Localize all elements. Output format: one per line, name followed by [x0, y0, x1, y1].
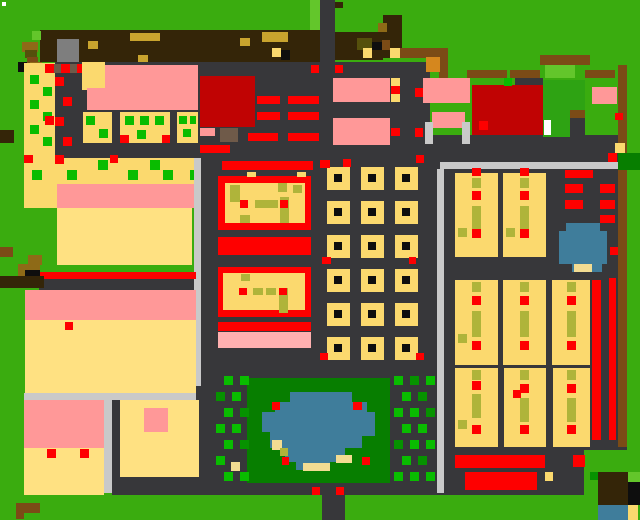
window: [615, 143, 625, 153]
marker: [343, 159, 351, 167]
storage-hatch: [334, 344, 342, 352]
storage-hatch: [402, 276, 410, 284]
park-tree: [240, 408, 249, 417]
detail: [567, 398, 576, 422]
crop-dot: [86, 116, 95, 125]
crop-dot: [183, 129, 191, 137]
red-bar: [600, 200, 615, 209]
pink-building: [333, 78, 390, 102]
shed: [598, 472, 628, 505]
pink-building: [333, 118, 390, 145]
red-bar: [600, 215, 615, 223]
crop-dot: [140, 116, 149, 125]
marker: [520, 296, 529, 305]
park-tree: [224, 472, 233, 481]
red-bar: [218, 237, 311, 255]
marker: [580, 457, 585, 466]
marker: [472, 168, 481, 176]
red-bar: [600, 184, 615, 193]
marker: [472, 341, 481, 350]
red-bar: [455, 455, 545, 468]
shrub: [335, 2, 343, 8]
crop-dot: [30, 100, 39, 109]
crop-dot: [43, 87, 52, 96]
storage-hatch: [334, 276, 342, 284]
crop-dot: [137, 130, 146, 139]
dark-red-building: [200, 76, 255, 127]
red-stripe: [609, 278, 616, 440]
marker: [47, 449, 56, 458]
red-bar: [218, 322, 311, 331]
marker: [280, 200, 288, 208]
water-tank: [566, 223, 600, 231]
grass-stripe: [310, 0, 320, 33]
crop-dot: [590, 472, 598, 480]
door: [281, 50, 290, 60]
hedge: [16, 512, 24, 519]
pond-sand: [336, 455, 352, 463]
grass-field: [626, 135, 640, 153]
marker: [567, 425, 576, 434]
window: [297, 172, 306, 177]
crop-dot: [504, 78, 512, 86]
pink-building: [144, 408, 168, 432]
pink-building: [24, 400, 104, 448]
crop-dot: [67, 170, 77, 180]
park-tree: [410, 472, 419, 481]
water-tank: [559, 231, 607, 264]
marker: [272, 402, 280, 410]
marker: [615, 113, 623, 120]
marker: [240, 200, 248, 208]
window: [391, 94, 400, 102]
crop-dot: [43, 137, 52, 146]
pink-building: [57, 184, 196, 208]
storage-hatch: [402, 344, 410, 352]
crop-dot: [155, 116, 164, 125]
detail: [458, 420, 467, 429]
marker: [320, 160, 330, 168]
storage-hatch: [368, 174, 376, 182]
pink-building: [87, 88, 105, 110]
red-bar: [200, 145, 230, 153]
red-bar: [565, 200, 583, 209]
marker: [63, 137, 72, 146]
roof-tile: [240, 38, 250, 46]
white-tile: [544, 120, 551, 135]
red-bar: [565, 184, 583, 193]
red-bar: [40, 272, 196, 279]
fence: [585, 70, 615, 78]
detail: [266, 288, 276, 295]
detail: [458, 334, 467, 343]
town-map-viewport[interactable]: [0, 0, 640, 520]
park-patch: [618, 153, 640, 170]
pond: [598, 505, 628, 520]
marker: [65, 322, 73, 330]
marker: [362, 457, 370, 465]
crop-dot: [163, 170, 173, 180]
park-tree: [240, 376, 249, 385]
detail: [240, 215, 250, 223]
red-bar: [257, 112, 280, 120]
park-tree: [418, 424, 427, 433]
detail: [472, 178, 481, 188]
window: [272, 48, 281, 57]
detail: [520, 178, 529, 188]
road-lane: [568, 118, 585, 135]
marker: [239, 288, 247, 295]
tree: [0, 247, 13, 257]
pond-sand: [574, 264, 592, 272]
pillar: [462, 122, 470, 144]
red-stripe: [592, 280, 601, 440]
sparkle: [2, 2, 6, 6]
marker: [391, 86, 400, 94]
marker: [55, 117, 64, 126]
roof-tile: [130, 33, 160, 41]
detail: [472, 370, 481, 380]
marker: [279, 288, 287, 295]
storage-hatch: [402, 208, 410, 216]
marker: [472, 381, 481, 390]
pillar: [425, 122, 433, 144]
detail: [241, 274, 250, 281]
marker: [520, 341, 529, 350]
fence: [467, 70, 507, 78]
sidewalk: [104, 400, 112, 493]
crop-dot: [99, 129, 108, 138]
crop-dot: [125, 116, 134, 125]
marker: [472, 191, 481, 200]
fence: [540, 55, 590, 65]
park-tree: [426, 472, 435, 481]
marker: [610, 247, 618, 255]
detail: [458, 228, 467, 237]
marker: [336, 487, 344, 495]
crop-field: [24, 448, 104, 495]
park-tree: [426, 440, 435, 449]
tree-trunk: [372, 42, 382, 50]
yellow-building: [82, 62, 105, 90]
road-north: [320, 0, 335, 62]
road-lane: [39, 279, 196, 290]
storage-hatch: [368, 310, 376, 318]
marker: [520, 425, 529, 434]
sidewalk: [440, 162, 640, 169]
marker: [513, 390, 521, 398]
marker: [63, 97, 72, 106]
window: [545, 472, 553, 481]
red-bar: [288, 96, 319, 104]
grass-field: [0, 495, 322, 520]
marker: [335, 65, 343, 73]
fence: [439, 48, 448, 78]
pond: [270, 432, 362, 448]
flower: [24, 155, 33, 163]
detail: [255, 200, 278, 208]
shrub: [0, 130, 14, 143]
pink-building: [592, 87, 617, 104]
marker: [472, 296, 481, 305]
park-tree: [402, 456, 411, 465]
grass-tuft: [32, 31, 41, 40]
park-tree: [410, 408, 419, 417]
storage-hatch: [368, 276, 376, 284]
park-tree: [394, 408, 403, 417]
crop-dot: [179, 116, 187, 124]
marker: [520, 384, 529, 393]
marker: [608, 153, 617, 162]
pink-building: [105, 65, 198, 110]
detail: [567, 311, 576, 337]
park-tree: [224, 408, 233, 417]
detail: [472, 311, 481, 337]
crop-dot: [128, 170, 138, 180]
storage-hatch: [334, 310, 342, 318]
marker: [311, 65, 319, 73]
sidewalk: [24, 393, 196, 400]
park-tree: [216, 456, 225, 465]
marker: [415, 128, 423, 137]
crop-dot: [150, 160, 160, 170]
park-tree: [394, 472, 403, 481]
building-court: [223, 273, 305, 310]
detail: [520, 398, 529, 422]
detail: [472, 394, 481, 418]
park-tree: [418, 456, 427, 465]
park-tree: [216, 392, 225, 401]
detail: [567, 282, 576, 292]
marker: [472, 425, 481, 434]
park-tree: [240, 440, 249, 449]
marker: [567, 384, 576, 393]
marker: [520, 191, 529, 200]
marker: [567, 296, 576, 305]
pond-sand: [628, 505, 638, 520]
park-tree: [410, 376, 419, 385]
detail: [293, 185, 302, 193]
pink-bar: [218, 332, 311, 348]
marker: [409, 257, 416, 264]
red-bar: [288, 112, 319, 120]
shed-dark: [628, 482, 640, 505]
crop-field: [57, 208, 192, 265]
park-tree: [394, 440, 403, 449]
crop-dot: [32, 170, 42, 180]
detail: [472, 282, 481, 292]
marker: [312, 487, 320, 495]
storage-hatch: [368, 208, 376, 216]
park-tree: [402, 424, 411, 433]
tile: [54, 64, 61, 73]
park-tree: [232, 424, 241, 433]
red-bar: [248, 133, 278, 141]
red-bar: [222, 161, 313, 170]
path-sand: [231, 462, 240, 471]
park-tree: [426, 376, 435, 385]
grass-tuft: [628, 472, 640, 482]
storage-hatch: [402, 242, 410, 250]
marker: [80, 449, 89, 458]
marker: [391, 128, 400, 136]
marker: [55, 77, 64, 86]
park-tree: [216, 424, 225, 433]
marker: [415, 88, 423, 97]
fence: [570, 110, 585, 118]
tree-trunk: [382, 40, 390, 50]
detail: [253, 288, 263, 295]
roof-tile: [88, 41, 98, 49]
pond-sand: [280, 448, 288, 456]
storage-hatch: [402, 174, 410, 182]
crop-dot: [190, 116, 196, 124]
pond: [290, 392, 352, 402]
roof-tile: [138, 55, 148, 62]
pond-sand: [303, 463, 330, 471]
red-bar: [565, 170, 593, 178]
park-tree: [426, 408, 435, 417]
pink-building: [423, 78, 470, 103]
storage-hatch: [368, 344, 376, 352]
detail: [520, 311, 529, 337]
window: [390, 48, 400, 58]
road-lane: [112, 477, 196, 495]
park-tree: [394, 376, 403, 385]
pink-building: [25, 290, 196, 320]
detail: [230, 185, 240, 202]
fence: [510, 70, 540, 78]
marker: [416, 155, 424, 163]
storage-hatch: [334, 208, 342, 216]
window: [391, 78, 400, 86]
crop-dot: [98, 160, 108, 170]
park-tree: [410, 440, 419, 449]
detail: [520, 370, 529, 380]
storage-hatch: [368, 242, 376, 250]
marker: [520, 229, 529, 238]
pink-building: [200, 128, 215, 136]
storage-hatch: [402, 310, 410, 318]
detail: [278, 183, 287, 192]
green-building: [543, 80, 585, 113]
red-bar: [257, 96, 280, 104]
park-tree: [240, 472, 249, 481]
grass-field: [627, 170, 640, 450]
storage-hatch: [334, 174, 342, 182]
hedge-strip: [618, 65, 627, 447]
road-south: [320, 495, 345, 520]
marker: [322, 257, 331, 264]
window: [247, 172, 256, 177]
roof-tile: [262, 32, 288, 42]
flower: [45, 116, 54, 125]
marker: [567, 341, 576, 350]
crop-dot: [30, 75, 39, 84]
marker: [520, 168, 529, 176]
detail: [520, 282, 529, 292]
marker: [479, 121, 488, 130]
flower: [110, 155, 118, 163]
tree-trunk: [378, 23, 387, 32]
window: [363, 48, 372, 58]
detail: [506, 228, 515, 237]
sidewalk: [437, 169, 444, 493]
crop-dot: [30, 125, 39, 134]
chimney: [57, 39, 79, 62]
marker: [416, 353, 424, 360]
detail: [567, 370, 576, 380]
park-tree: [418, 392, 427, 401]
tree: [0, 276, 44, 288]
park-tree: [232, 392, 241, 401]
road-lane: [112, 400, 120, 477]
grass-field: [345, 495, 640, 520]
crop-field: [25, 320, 196, 393]
red-bar: [288, 133, 319, 141]
park-tree: [224, 440, 233, 449]
marker: [353, 402, 362, 410]
grass-tuft: [545, 65, 575, 78]
red-bar: [465, 472, 537, 490]
marker: [472, 229, 481, 238]
marker: [120, 135, 129, 143]
tile: [220, 128, 238, 142]
pavilion-roof: [432, 112, 465, 128]
park-tree: [224, 376, 233, 385]
tile: [70, 64, 77, 73]
marker: [162, 135, 170, 143]
park-tree: [402, 392, 411, 401]
orange-box: [426, 57, 440, 72]
marker: [55, 155, 64, 164]
marker: [320, 353, 328, 360]
storage-hatch: [334, 242, 342, 250]
crop-field: [24, 184, 57, 208]
marker: [282, 457, 289, 465]
